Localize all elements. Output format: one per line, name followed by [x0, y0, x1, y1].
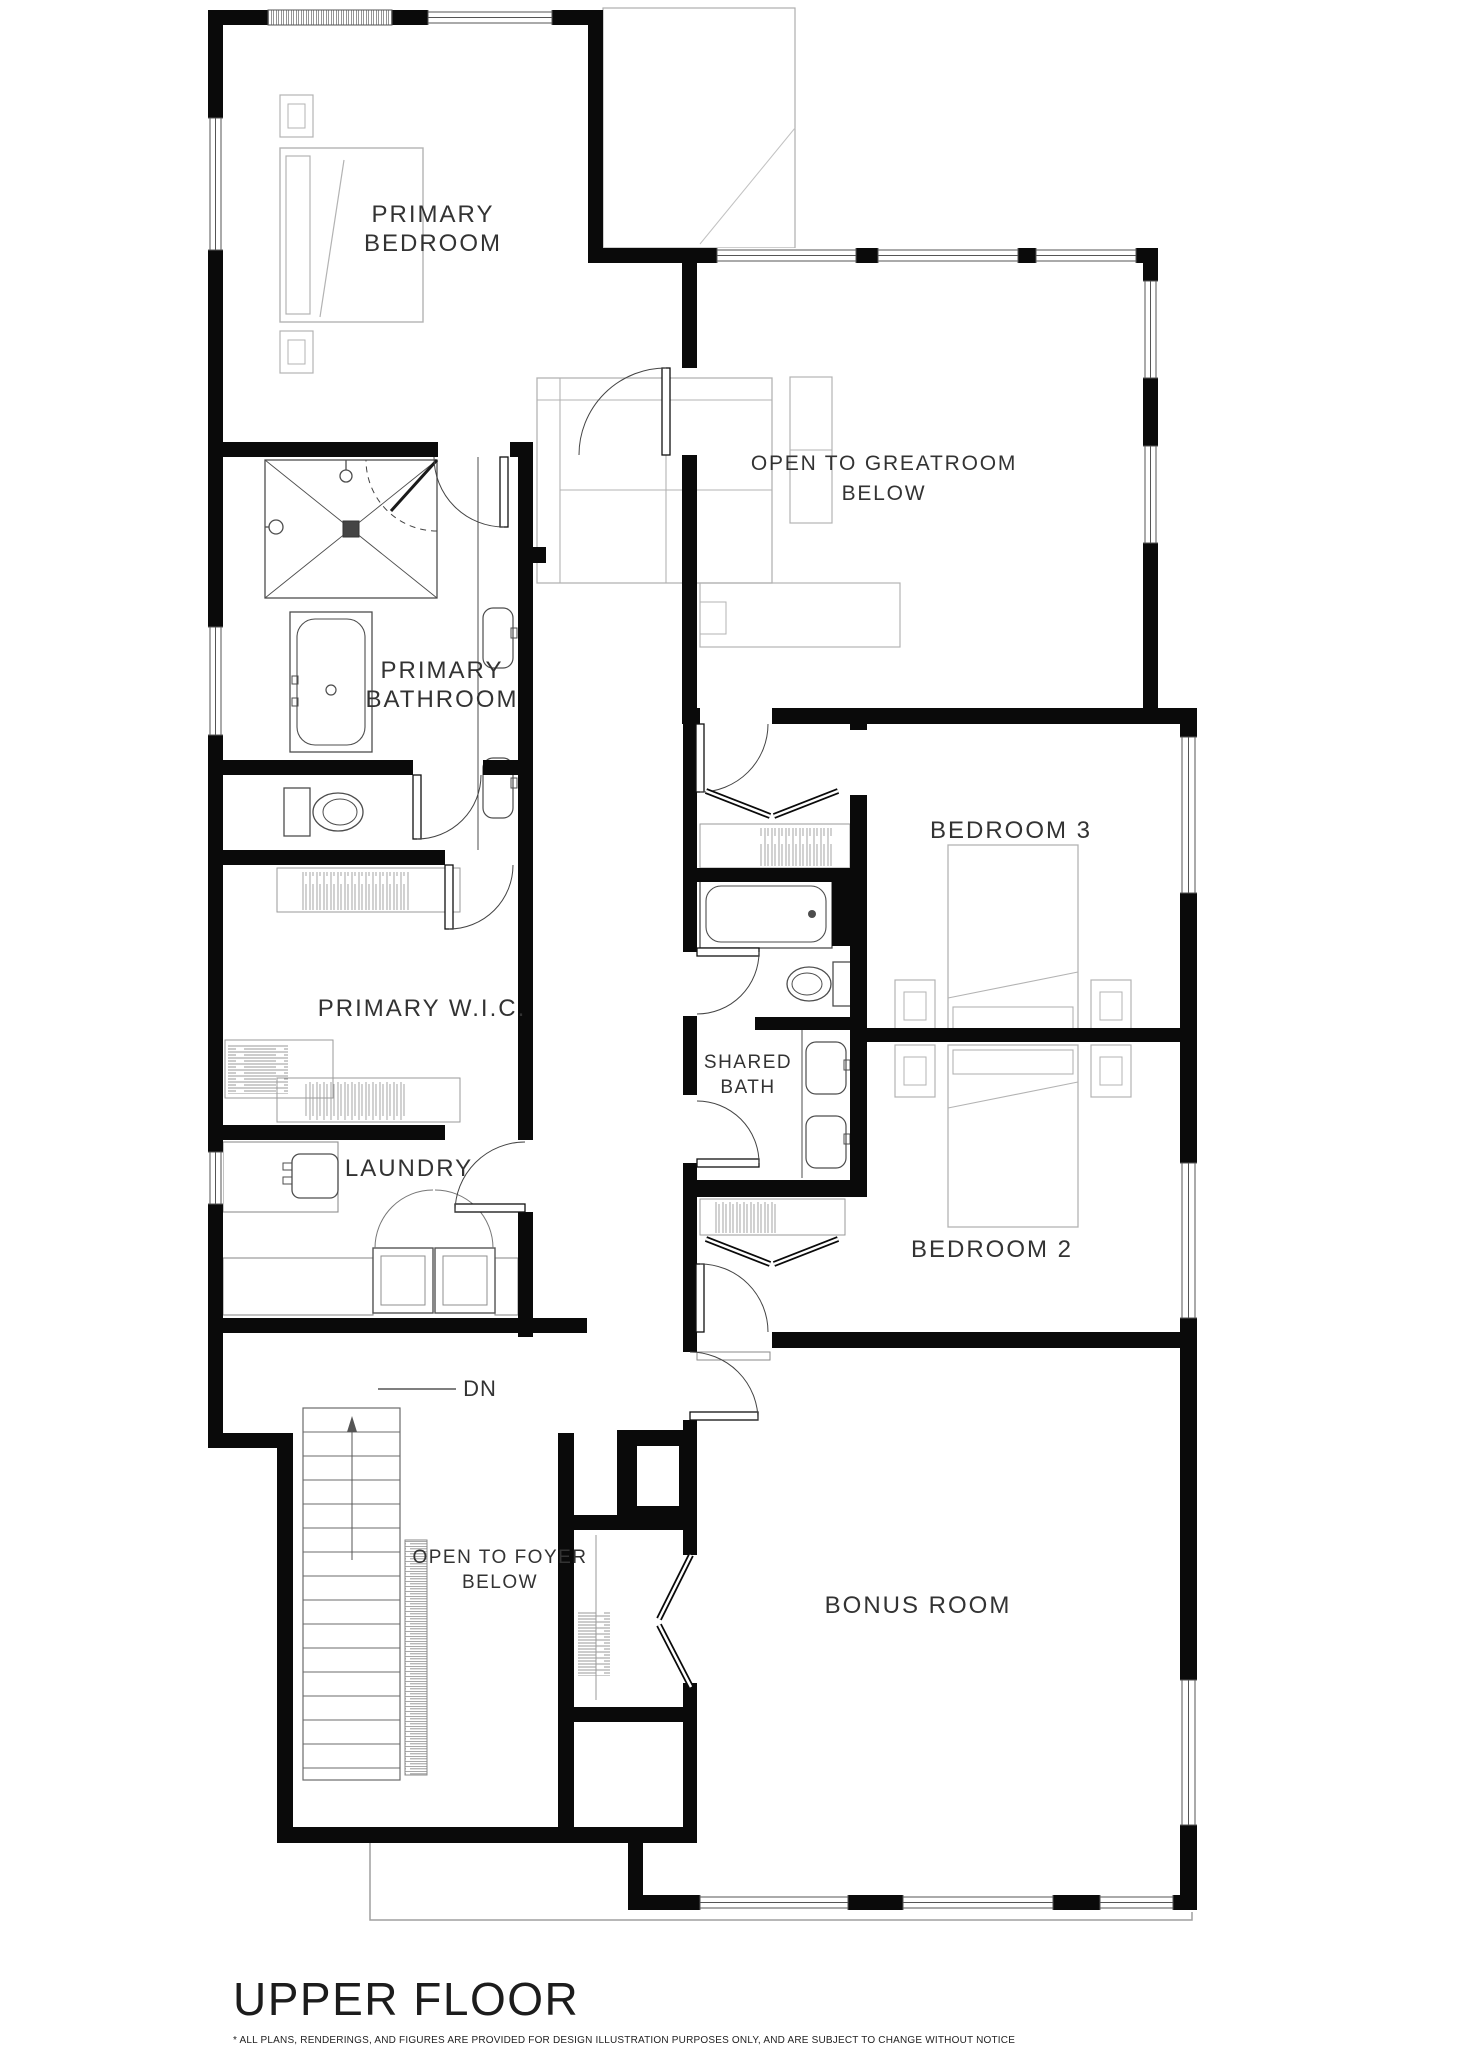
laundry-faucet	[283, 1177, 292, 1184]
nightstand	[895, 980, 935, 1032]
door-swing-arc	[697, 1101, 759, 1163]
nightstand-lamp	[904, 992, 926, 1020]
nightstand-lamp	[1100, 1057, 1122, 1085]
wall-segment	[832, 882, 850, 946]
closet-hanger-hatch	[578, 1612, 610, 1676]
wall-segment	[483, 760, 533, 775]
nightstand	[1091, 980, 1131, 1032]
sectional-sofa	[537, 378, 772, 583]
door-swing-arc	[700, 1264, 768, 1332]
bedroom2-hanger-hatch	[715, 1202, 777, 1233]
wall-segment	[683, 1683, 697, 1722]
sink-faucet	[844, 1060, 850, 1070]
toilet-shared-bowl	[787, 967, 831, 1001]
door-swing-arc	[700, 724, 768, 792]
open-to-greatroom-label-line2: BELOW	[842, 482, 927, 505]
wall-segment	[208, 760, 413, 775]
wall-segment	[683, 1722, 697, 1832]
laundry-label: LAUNDRY	[345, 1155, 473, 1182]
bedroom-3-label: BEDROOM 3	[930, 817, 1092, 844]
bifold-door-leaf-face	[706, 1239, 770, 1264]
wall-segment	[683, 708, 700, 724]
bed-bedroom2-fold-line	[948, 1082, 1078, 1108]
bathtub-primary	[290, 612, 372, 752]
wall-segment	[208, 1318, 587, 1333]
door-leaf	[690, 1412, 758, 1420]
wall-segment	[518, 442, 533, 1140]
door-leaf	[662, 368, 670, 455]
linen-hanger-hatch	[760, 828, 832, 866]
wic-hanger-hatch	[305, 1082, 405, 1120]
wic-hanger-hatch	[228, 1044, 288, 1094]
sink-faucet	[511, 778, 517, 788]
shared-bath-label-line2: BATH	[720, 1077, 775, 1098]
wall-segment	[277, 1827, 697, 1843]
open-to-foyer-label-line2: BELOW	[462, 1572, 538, 1593]
laundry-sink	[292, 1154, 338, 1198]
shower-drain	[343, 521, 359, 537]
bonus-room-label: BONUS ROOM	[825, 1592, 1012, 1619]
wall-segment	[682, 455, 697, 724]
bed-bedroom2	[948, 1045, 1078, 1227]
window-screened-hatch	[268, 10, 392, 25]
sheet-title: UPPER FLOOR	[233, 1973, 579, 2025]
stairs-down-label: DN	[463, 1376, 497, 1401]
primary-bathroom-label-line1: PRIMARY	[381, 657, 504, 684]
bathtub-drain	[326, 685, 336, 695]
wall-segment	[683, 1180, 867, 1197]
wall-segment	[518, 547, 546, 563]
floor-plan-page: PRIMARY BEDROOM OPEN TO GREATROOM BELOW …	[0, 0, 1467, 2048]
wall-segment	[697, 868, 850, 882]
wall-segment	[682, 248, 697, 368]
bed-primary-headboard	[286, 156, 310, 314]
nightstand-lamp	[288, 104, 305, 128]
door-leaf	[696, 1264, 704, 1332]
wall-segment	[850, 708, 867, 730]
shower-valve-icon	[269, 520, 283, 534]
door-swing-arc	[449, 865, 513, 929]
door-leaf	[500, 457, 508, 527]
structure-outline-layer	[303, 8, 1192, 1920]
nightstand-lamp	[1100, 992, 1122, 1020]
wall-segment	[683, 1016, 697, 1095]
wall-segment	[628, 1843, 643, 1903]
door-leaf	[697, 1159, 759, 1167]
bed-bedroom3-fold-line	[948, 972, 1078, 998]
roof-ridge-line	[700, 128, 795, 244]
bed-bedroom3-headboard	[953, 1007, 1073, 1031]
nightstand	[280, 331, 313, 373]
stair-guard-hatch	[405, 1540, 427, 1775]
laundry-faucet	[283, 1163, 292, 1170]
toilet-primary-seat	[323, 799, 357, 825]
wall-segment	[850, 1028, 1197, 1042]
shower-glass-door-leaf	[391, 460, 437, 511]
nightstand	[1091, 1045, 1131, 1097]
toilet-shared-tank	[833, 962, 851, 1006]
bathtub-primary-basin	[297, 619, 365, 745]
bathtub-shared-drain	[808, 910, 816, 918]
nightstand	[895, 1045, 935, 1097]
shared-bath-label-line1: SHARED	[704, 1052, 792, 1073]
vanity-sink	[806, 1042, 846, 1094]
bifold-door-leaf-face	[774, 791, 838, 816]
wall-segment	[772, 1332, 1197, 1348]
toilet-primary-tank	[284, 788, 310, 836]
nightstand	[280, 95, 313, 137]
primary-wic-label: PRIMARY W.I.C.	[318, 995, 526, 1022]
wall-segment	[683, 724, 697, 952]
door-swing-arc	[579, 368, 666, 455]
roof-below-outline	[603, 8, 795, 248]
primary-bedroom-label-line2: BEDROOM	[364, 230, 502, 257]
open-to-greatroom-label-line1: OPEN TO GREATROOM	[751, 452, 1017, 475]
shower-head-icon	[340, 470, 352, 482]
vanity-sink	[806, 1116, 846, 1168]
sheet-disclaimer: * ALL PLANS, RENDERINGS, AND FIGURES ARE…	[233, 2035, 1015, 2046]
bifold-door-leaf-face	[659, 1555, 691, 1619]
bedroom-2-label: BEDROOM 2	[911, 1236, 1073, 1263]
door-swing-arc	[690, 1352, 758, 1420]
door-leaf	[455, 1204, 525, 1212]
washer-door-swing-arc	[375, 1190, 433, 1248]
nightstand-lamp	[288, 340, 305, 364]
media-table-end	[700, 602, 726, 634]
laundry-counter	[495, 1258, 518, 1315]
bed-primary-fold-line	[320, 160, 344, 317]
door-leaf	[697, 948, 759, 956]
wall-segment	[208, 442, 438, 457]
wall-segment	[850, 795, 867, 1197]
door-leaf	[413, 775, 421, 839]
upper-floor-plan-drawing: PRIMARY BEDROOM OPEN TO GREATROOM BELOW …	[0, 0, 1467, 2048]
wall-segment	[208, 850, 445, 865]
wall-segment	[558, 1433, 574, 1843]
room-labels: PRIMARY BEDROOM OPEN TO GREATROOM BELOW …	[318, 201, 1092, 1619]
wall-segment	[208, 1125, 445, 1140]
primary-bedroom-label-line1: PRIMARY	[372, 201, 495, 228]
half-wall-ledge	[697, 1352, 770, 1360]
sheet-titles: UPPER FLOOR * ALL PLANS, RENDERINGS, AND…	[233, 1973, 1015, 2046]
dryer-door-swing-arc	[435, 1190, 493, 1248]
laundry-counter	[223, 1258, 373, 1315]
door-swing-arc	[417, 775, 481, 839]
door-swing-arc	[697, 952, 759, 1014]
door-swing-arc	[434, 457, 504, 527]
dryer	[435, 1248, 495, 1313]
bifold-door-leaf-face	[774, 1239, 838, 1264]
sink-faucet	[511, 628, 517, 638]
media-table	[700, 583, 900, 647]
primary-bathroom-label-line2: BATHROOM	[366, 686, 519, 713]
door-leaf	[445, 865, 453, 929]
washer	[373, 1248, 433, 1313]
laundry-counter	[223, 1142, 338, 1212]
toilet-shared-seat	[792, 973, 822, 995]
chase-core	[637, 1446, 679, 1506]
nightstand-lamp	[904, 1057, 926, 1085]
wall-segment	[772, 708, 1197, 724]
door-leaf	[696, 724, 704, 792]
bed-bedroom2-headboard	[953, 1050, 1073, 1074]
sink-faucet	[844, 1134, 850, 1144]
wic-hanger-hatch	[300, 872, 410, 910]
open-to-foyer-label-line1: OPEN TO FOYER	[412, 1547, 587, 1568]
wall-segment	[574, 1707, 697, 1722]
bifold-door-leaf-face	[659, 1625, 691, 1687]
wall-segment	[277, 1433, 293, 1843]
wall-segment	[588, 248, 697, 263]
wall-segment	[588, 10, 603, 263]
bifold-door-leaf-face	[706, 791, 770, 816]
